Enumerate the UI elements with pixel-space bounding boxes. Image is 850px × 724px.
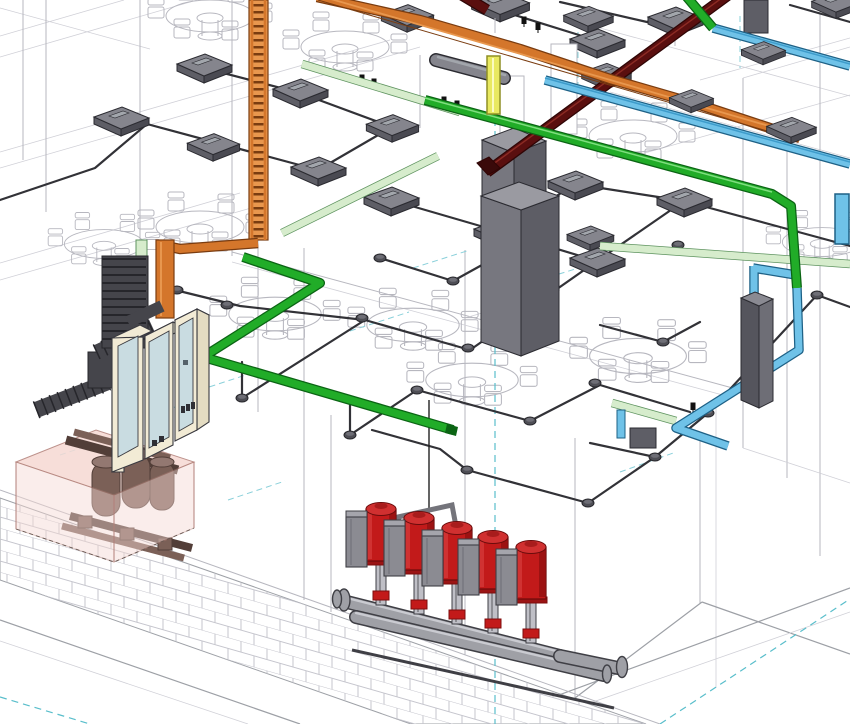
conduit-junction[interactable]	[374, 254, 386, 262]
conduit-junction[interactable]	[524, 417, 536, 425]
conduit-junction[interactable]	[344, 431, 356, 439]
yellow-feeder-drop[interactable]	[487, 56, 500, 114]
conduit-junction[interactable]	[649, 453, 661, 461]
switchboard-section-right[interactable]	[175, 309, 209, 441]
conduit-junction[interactable]	[447, 277, 459, 285]
conduit-end-fitting	[445, 424, 458, 436]
riser-top-box[interactable]	[744, 0, 768, 33]
ceiling-junction-box[interactable]	[273, 79, 328, 108]
wall-mounted-panel[interactable]	[741, 292, 773, 408]
ceiling-junction-box[interactable]	[177, 54, 232, 83]
conduit-junction[interactable]	[582, 499, 594, 507]
orange-ladder-riser[interactable]	[249, 0, 268, 240]
ceiling-junction-box[interactable]	[291, 157, 346, 186]
ceiling-equipment[interactable]	[94, 0, 850, 277]
sensor-fitting[interactable]	[536, 23, 541, 34]
conduit-junction[interactable]	[461, 466, 473, 474]
conduit-junction[interactable]	[462, 344, 474, 352]
conduit-junction[interactable]	[589, 379, 601, 387]
pipe-flange	[617, 657, 628, 678]
pipe-flange	[603, 665, 612, 683]
conduit-junction[interactable]	[221, 301, 233, 309]
conduit-junction[interactable]	[657, 338, 669, 346]
ceiling-junction-box[interactable]	[812, 0, 850, 18]
bim-3d-viewport[interactable]: Isometric MEP coordination view: cable t…	[0, 0, 850, 724]
model-canvas[interactable]: Isometric MEP coordination view: cable t…	[0, 0, 850, 724]
conduit-junction[interactable]	[236, 394, 248, 402]
vertical-pump-5[interactable]	[496, 541, 547, 644]
conduit-junction[interactable]	[811, 291, 823, 299]
conduit-junction[interactable]	[356, 314, 368, 322]
ceiling-junction-box[interactable]	[564, 6, 614, 32]
conduit-junction[interactable]	[411, 386, 423, 394]
ceiling-junction-box[interactable]	[570, 248, 625, 277]
table-with-chairs[interactable]	[570, 318, 706, 383]
sensor-fitting[interactable]	[522, 17, 527, 28]
pipe-flange	[333, 590, 342, 608]
